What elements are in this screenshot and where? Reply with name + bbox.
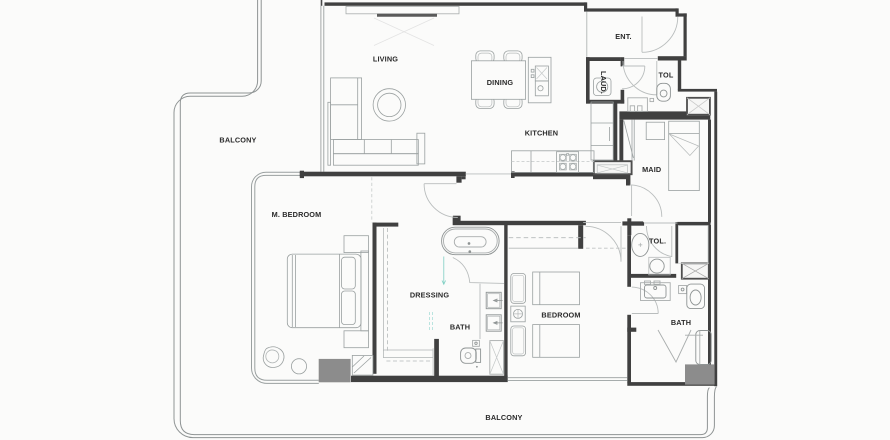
svg-text:BATH: BATH (671, 318, 691, 327)
svg-text:DRESSING: DRESSING (410, 291, 449, 300)
svg-text:LAUD.: LAUD. (599, 71, 608, 94)
svg-text:TOL: TOL (659, 70, 674, 79)
svg-text:MAID: MAID (642, 165, 661, 174)
svg-text:LIVING: LIVING (373, 55, 398, 64)
svg-text:TOL.: TOL. (649, 236, 666, 245)
svg-text:DINING: DINING (487, 78, 514, 87)
svg-text:ENT.: ENT. (615, 32, 631, 41)
svg-text:BEDROOM: BEDROOM (541, 310, 580, 319)
svg-text:BATH: BATH (450, 322, 470, 331)
svg-text:M. BEDROOM: M. BEDROOM (272, 210, 322, 219)
svg-text:KITCHEN: KITCHEN (525, 128, 558, 137)
svg-text:BALCONY: BALCONY (219, 135, 256, 144)
svg-text:BALCONY: BALCONY (485, 413, 522, 422)
